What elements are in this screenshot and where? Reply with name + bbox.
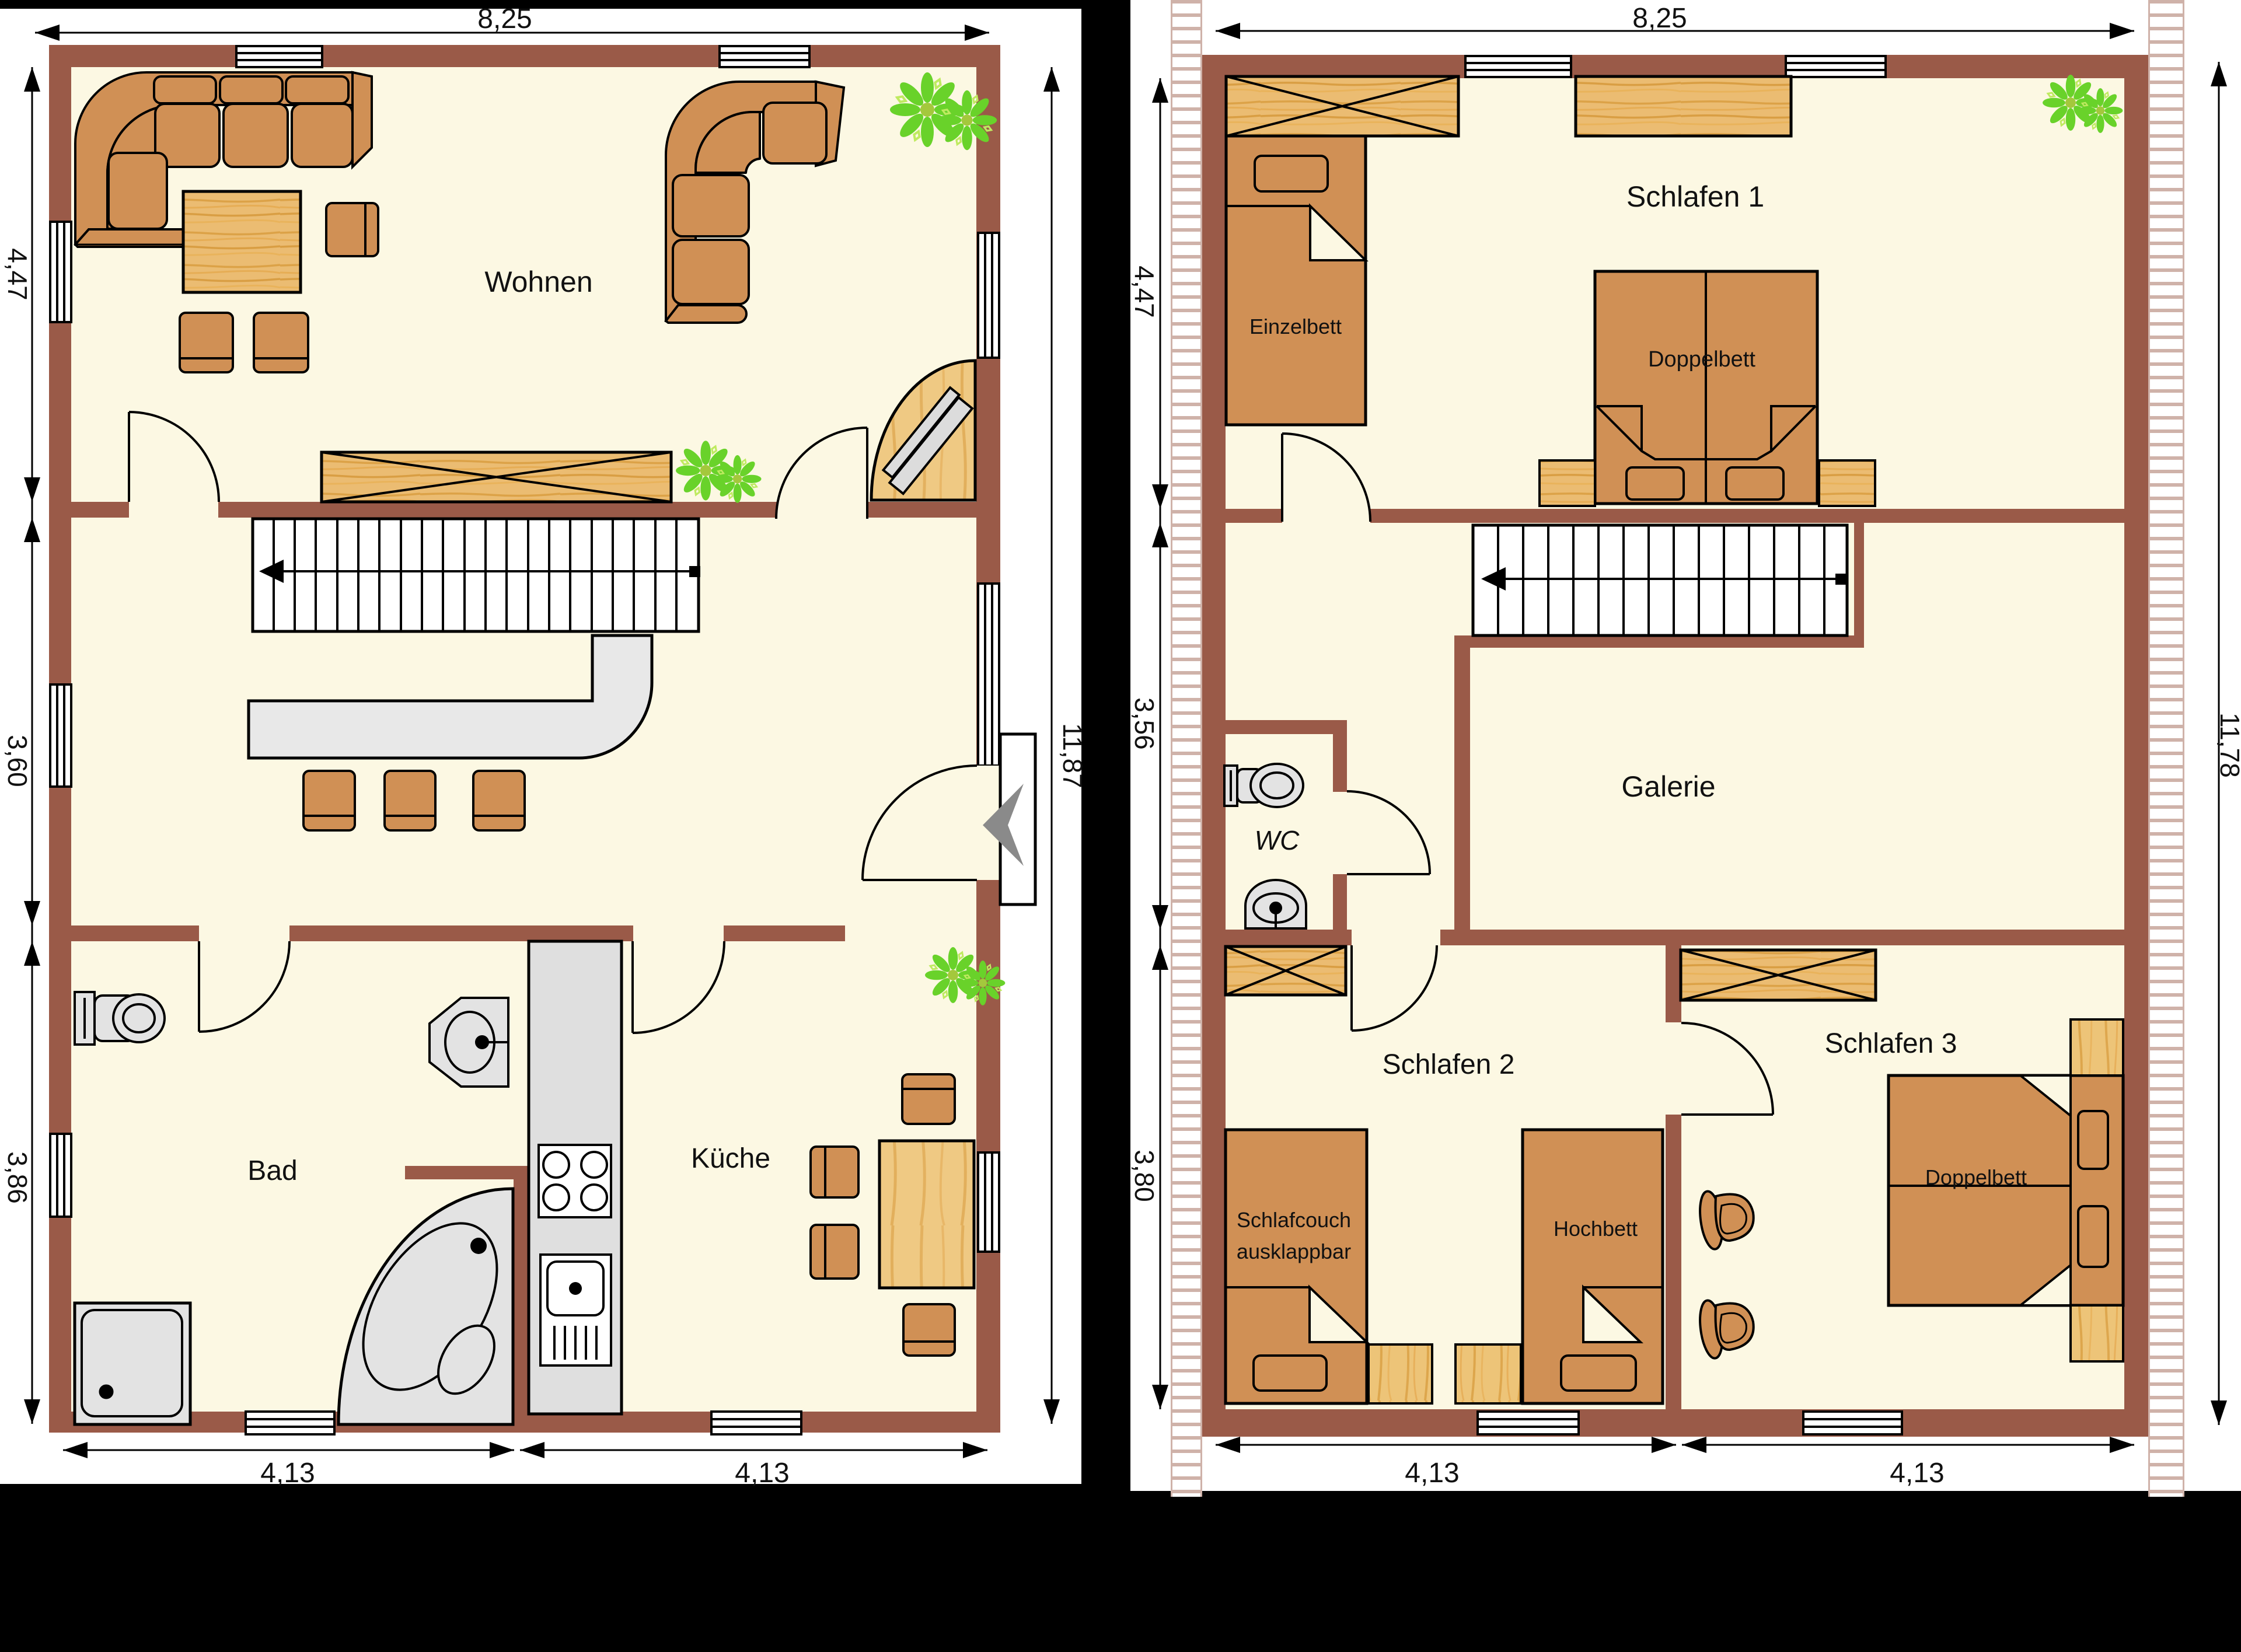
svg-text:Einzelbett: Einzelbett <box>1249 315 1342 338</box>
svg-text:4,47: 4,47 <box>2 248 33 301</box>
svg-text:Schlafcouch: Schlafcouch <box>1237 1208 1351 1232</box>
svg-text:4,13: 4,13 <box>260 1458 315 1489</box>
svg-text:4,47: 4,47 <box>1129 266 1160 318</box>
svg-text:Bad: Bad <box>247 1155 297 1186</box>
svg-text:4,13: 4,13 <box>1890 1458 1944 1489</box>
svg-text:ausklappbar: ausklappbar <box>1237 1239 1351 1263</box>
svg-text:3,80: 3,80 <box>1129 1150 1160 1202</box>
svg-text:8,25: 8,25 <box>477 4 532 34</box>
svg-text:3,60: 3,60 <box>2 735 33 787</box>
svg-text:Wohnen: Wohnen <box>484 266 592 298</box>
svg-text:Schlafen 3: Schlafen 3 <box>1825 1028 1957 1059</box>
svg-text:WC: WC <box>1255 825 1300 855</box>
svg-text:4,13: 4,13 <box>735 1458 789 1489</box>
svg-text:8,25: 8,25 <box>1632 3 1687 34</box>
svg-text:11,87: 11,87 <box>1057 723 1088 788</box>
svg-text:Schlafen 1: Schlafen 1 <box>1626 180 1764 213</box>
svg-text:Küche: Küche <box>691 1143 770 1174</box>
svg-text:3,56: 3,56 <box>1129 697 1160 750</box>
svg-text:Hochbett: Hochbett <box>1554 1217 1638 1241</box>
svg-text:Schlafen 2: Schlafen 2 <box>1383 1049 1515 1080</box>
svg-text:Doppelbett: Doppelbett <box>1925 1165 2027 1189</box>
svg-text:11,78: 11,78 <box>2215 713 2241 778</box>
svg-text:4,13: 4,13 <box>1405 1458 1459 1489</box>
svg-text:Doppelbett: Doppelbett <box>1648 347 1755 372</box>
svg-text:Galerie: Galerie <box>1621 770 1715 803</box>
svg-text:3,86: 3,86 <box>2 1151 33 1204</box>
